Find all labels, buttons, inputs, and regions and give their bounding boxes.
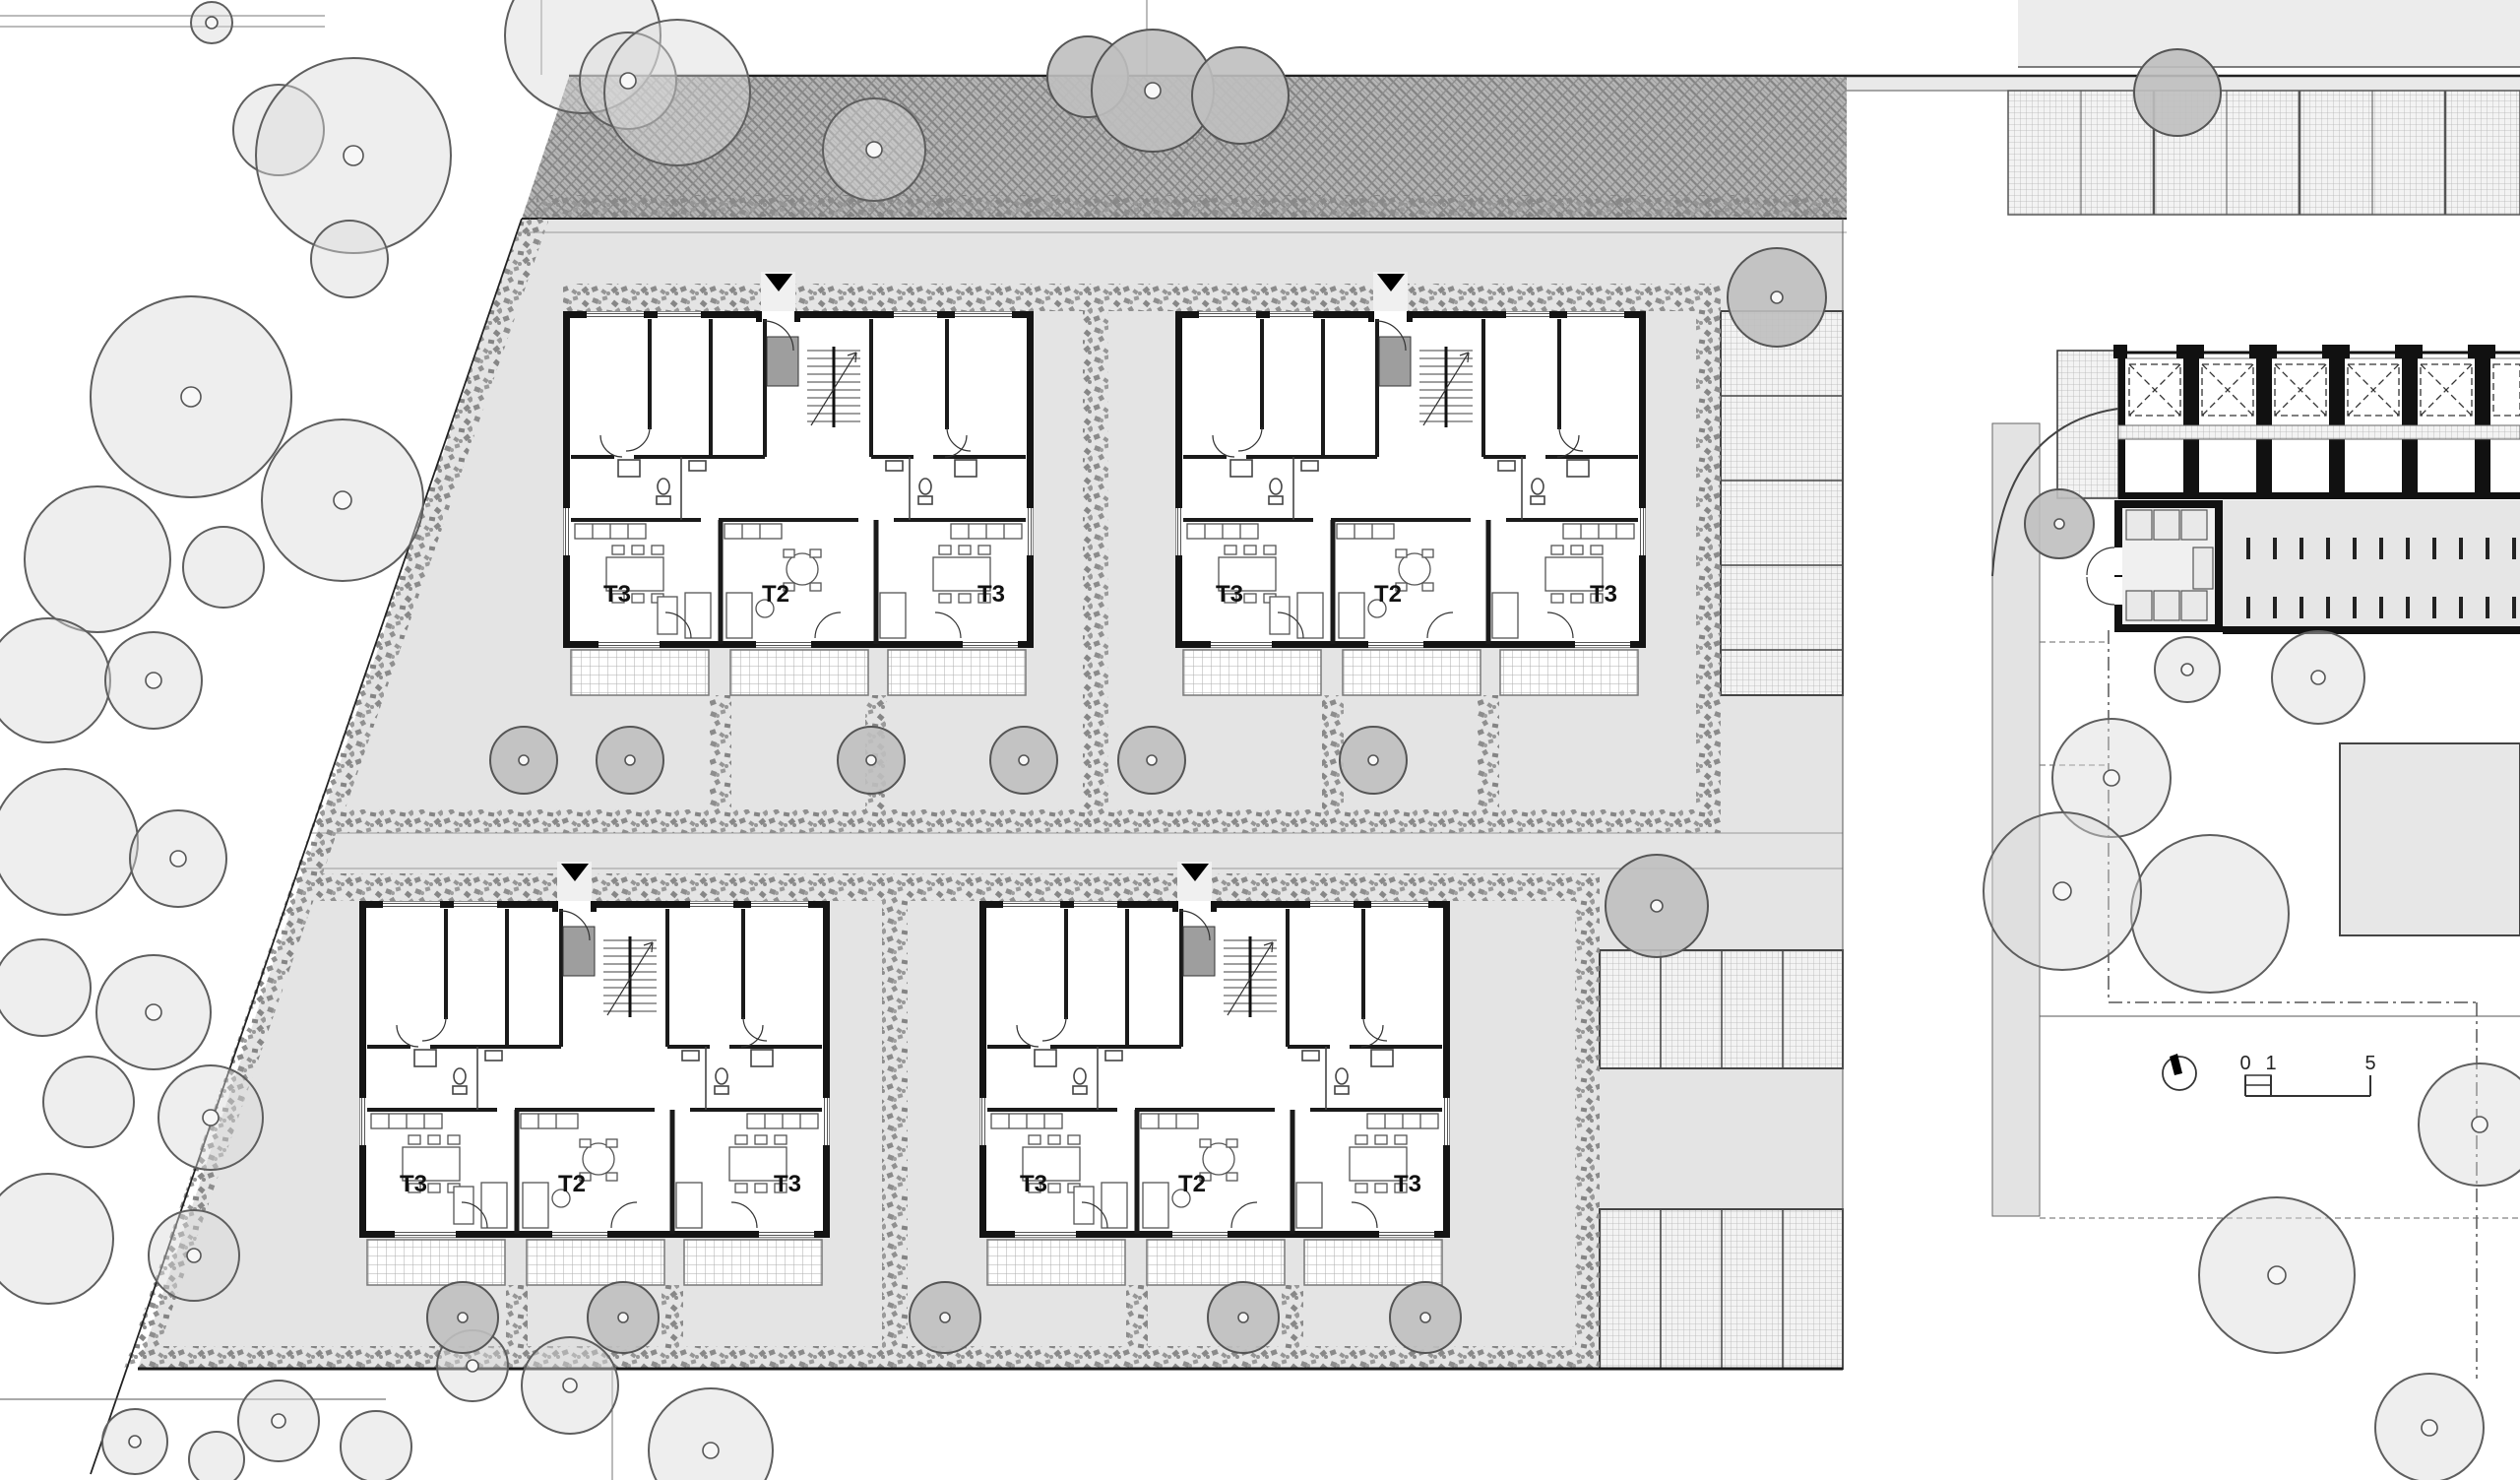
building-b: T3 T2 T3 [1175,274,1646,695]
carport [2057,345,2520,499]
unit-label: T2 [762,581,789,608]
unit-label: T2 [1178,1171,1206,1197]
unit-label: T2 [558,1171,586,1197]
scale-tick-1: 1 [2265,1053,2276,1074]
unit-label: T3 [1020,1171,1047,1197]
north-arrow-icon [2163,1054,2196,1090]
scale-tick-5: 5 [2364,1053,2375,1074]
unit-label: T3 [1216,581,1243,608]
scale-bar: 0 1 5 [2239,1053,2375,1096]
building-a: T3 T2 T3 [563,274,1034,695]
bike-shed [2087,500,2223,632]
unit-label: T3 [1590,581,1617,608]
unit-label: T3 [603,581,631,608]
unit-label: T2 [1374,581,1402,608]
hedge-texture [536,195,1841,217]
scale-tick-0: 0 [2239,1053,2250,1074]
site-plan-page: T3 T2 T3 T3 T2 T3 T3 T2 T3 T3 T2 T3 [0,0,2520,1480]
site-plan-canvas: T3 T2 T3 T3 T2 T3 T3 T2 T3 T3 T2 T3 [0,0,2520,1480]
unit-label: T3 [977,581,1005,608]
building-d: T3 T2 T3 [979,864,1450,1285]
paver-grid-area [2008,91,2520,215]
parking-lot [2223,500,2520,634]
unit-label: T3 [774,1171,801,1197]
unit-label: T3 [1394,1171,1421,1197]
unit-label: T3 [400,1171,427,1197]
door-swing-icon [2087,547,2114,605]
neighbor-building-footprint [2340,743,2520,935]
building-c: T3 T2 T3 [359,864,830,1285]
